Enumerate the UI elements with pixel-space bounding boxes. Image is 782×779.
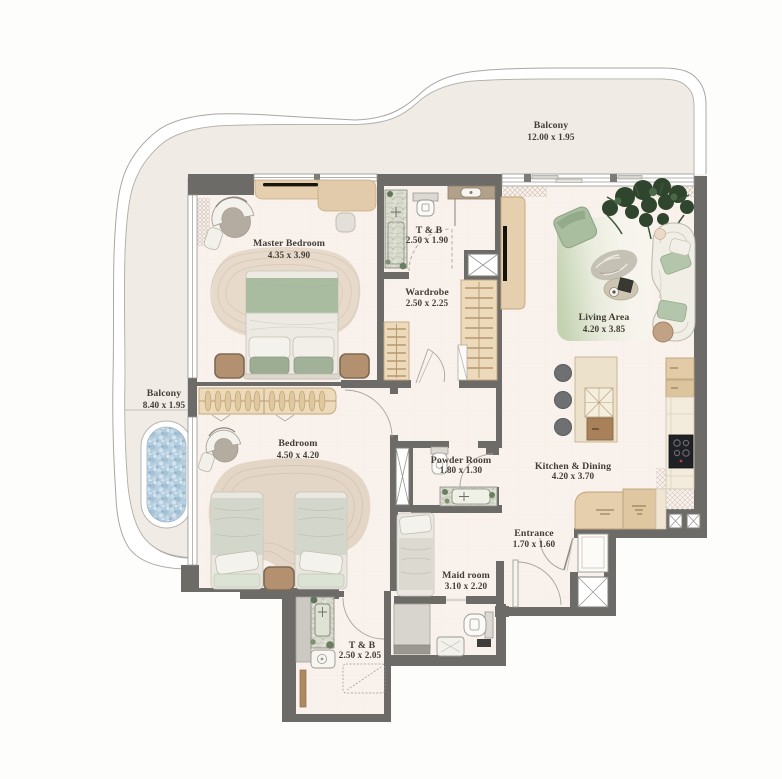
svg-text:4.20 x 3.70: 4.20 x 3.70 xyxy=(552,471,595,481)
svg-text:Entrance: Entrance xyxy=(514,528,554,539)
svg-text:3.10 x 2.20: 3.10 x 2.20 xyxy=(445,581,488,591)
svg-text:Balcony: Balcony xyxy=(147,388,181,399)
svg-text:Wardrobe: Wardrobe xyxy=(405,287,449,298)
svg-text:1.80 x 1.30: 1.80 x 1.30 xyxy=(440,465,483,475)
svg-text:Living Area: Living Area xyxy=(579,312,630,323)
svg-text:4.50 x 4.20: 4.50 x 4.20 xyxy=(277,450,320,460)
svg-text:4.20 x 3.85: 4.20 x 3.85 xyxy=(583,324,626,334)
svg-text:Master Bedroom: Master Bedroom xyxy=(253,238,325,249)
svg-text:Maid room: Maid room xyxy=(442,570,490,581)
svg-text:12.00 x 1.95: 12.00 x 1.95 xyxy=(527,132,574,142)
svg-text:2.50 x 1.90: 2.50 x 1.90 xyxy=(406,235,449,245)
svg-text:2.50 x 2.05: 2.50 x 2.05 xyxy=(339,650,382,660)
svg-text:8.40 x 1.95: 8.40 x 1.95 xyxy=(143,400,186,410)
svg-text:Balcony: Balcony xyxy=(534,120,568,131)
svg-text:4.35 x 3.90: 4.35 x 3.90 xyxy=(268,250,311,260)
svg-text:1.70 x 1.60: 1.70 x 1.60 xyxy=(513,539,556,549)
svg-text:2.50 x 2.25: 2.50 x 2.25 xyxy=(406,298,449,308)
svg-text:Bedroom: Bedroom xyxy=(278,438,317,449)
